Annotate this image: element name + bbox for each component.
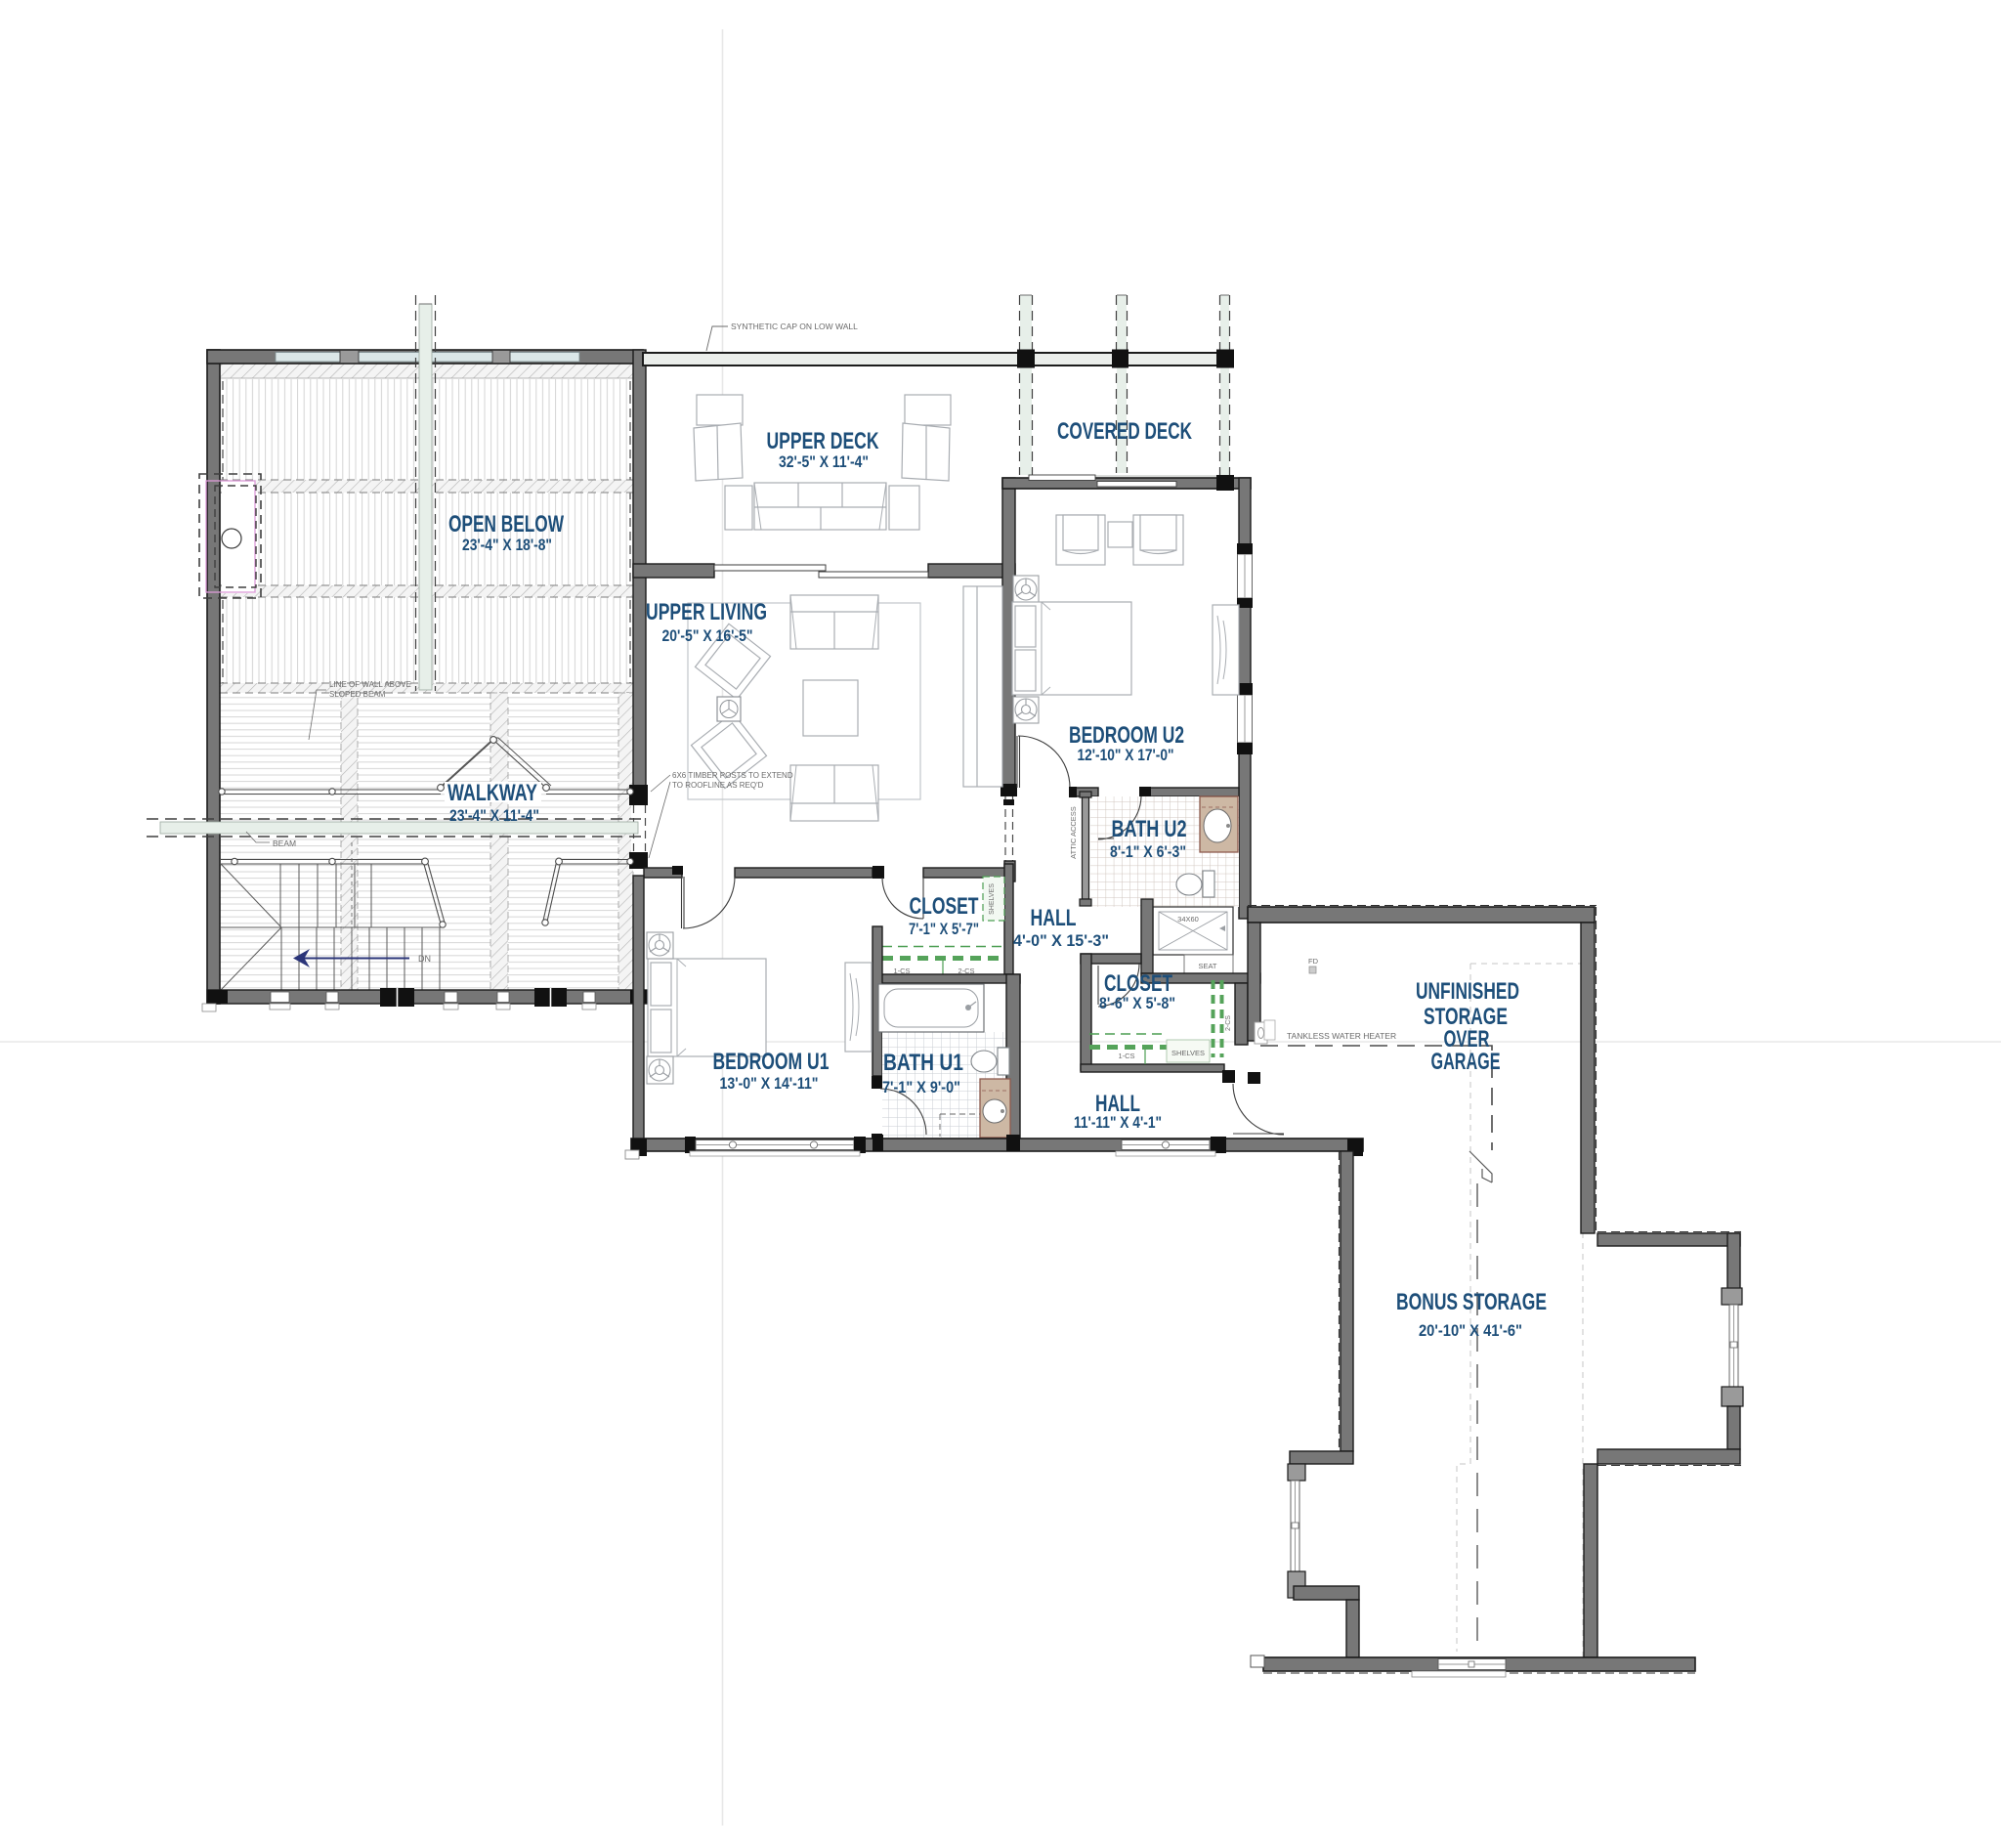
svg-text:BONUS STORAGE: BONUS STORAGE: [1396, 1289, 1547, 1315]
svg-text:SYNTHETIC CAP ON LOW WALL: SYNTHETIC CAP ON LOW WALL: [731, 322, 858, 331]
svg-text:13'-0" X 14'-11": 13'-0" X 14'-11": [720, 1074, 819, 1093]
svg-text:BEAM: BEAM: [273, 838, 296, 848]
svg-text:7'-1" X 5'-7": 7'-1" X 5'-7": [909, 920, 979, 938]
svg-text:SHELVES: SHELVES: [1171, 1049, 1205, 1057]
svg-text:20'-10" X 41'-6": 20'-10" X 41'-6": [1419, 1321, 1522, 1340]
svg-text:HALL: HALL: [1031, 905, 1077, 931]
svg-text:8'-1" X 6'-3": 8'-1" X 6'-3": [1110, 842, 1186, 861]
svg-text:12'-10" X 17'-0": 12'-10" X 17'-0": [1078, 746, 1174, 764]
svg-text:TO ROOFLINE AS REQ'D: TO ROOFLINE AS REQ'D: [672, 781, 764, 790]
svg-text:23'-4" X 18'-8": 23'-4" X 18'-8": [462, 536, 552, 554]
svg-text:4'-0" X 15'-3": 4'-0" X 15'-3": [1013, 931, 1109, 950]
svg-text:BEDROOM U1: BEDROOM U1: [713, 1049, 830, 1075]
svg-text:FD: FD: [1308, 957, 1319, 966]
svg-text:SLOPED BEAM: SLOPED BEAM: [329, 690, 386, 699]
svg-text:7'-1" X 9'-0": 7'-1" X 9'-0": [882, 1078, 960, 1096]
svg-text:2-CS: 2-CS: [1225, 1015, 1232, 1031]
svg-text:UNFINISHED: UNFINISHED: [1416, 978, 1519, 1005]
svg-text:SEAT: SEAT: [1198, 962, 1216, 970]
svg-text:WALKWAY: WALKWAY: [447, 780, 537, 806]
svg-text:6X6 TIMBER POSTS TO EXTEND: 6X6 TIMBER POSTS TO EXTEND: [672, 771, 793, 780]
svg-text:20'-5" X 16'-5": 20'-5" X 16'-5": [662, 626, 753, 645]
svg-text:COVERED DECK: COVERED DECK: [1057, 418, 1192, 445]
svg-text:OPEN BELOW: OPEN BELOW: [448, 511, 564, 537]
svg-text:TANKLESS WATER HEATER: TANKLESS WATER HEATER: [1287, 1031, 1396, 1041]
svg-text:CLOSET: CLOSET: [1104, 970, 1172, 997]
svg-text:34X60: 34X60: [1177, 915, 1199, 924]
svg-text:UPPER DECK: UPPER DECK: [767, 428, 879, 454]
svg-text:1-CS: 1-CS: [1118, 1052, 1134, 1060]
svg-text:UPPER LIVING: UPPER LIVING: [646, 599, 767, 625]
svg-text:32'-5" X 11'-4": 32'-5" X 11'-4": [779, 452, 869, 471]
svg-text:11'-11" X 4'-1": 11'-11" X 4'-1": [1074, 1113, 1162, 1132]
svg-text:DN: DN: [418, 954, 431, 964]
svg-text:BATH U1: BATH U1: [883, 1050, 963, 1076]
svg-text:BEDROOM U2: BEDROOM U2: [1069, 722, 1184, 749]
svg-text:SHELVES: SHELVES: [989, 883, 996, 915]
svg-text:8'-6" X 5'-8": 8'-6" X 5'-8": [1099, 994, 1175, 1012]
svg-text:CLOSET: CLOSET: [910, 893, 979, 920]
svg-text:BATH U2: BATH U2: [1112, 816, 1187, 842]
svg-text:ATTIC ACCESS: ATTIC ACCESS: [1069, 806, 1078, 859]
svg-text:GARAGE: GARAGE: [1431, 1049, 1501, 1075]
svg-text:LINE OF WALL ABOVE: LINE OF WALL ABOVE: [329, 680, 411, 689]
svg-text:23'-4" X 11'-4": 23'-4" X 11'-4": [449, 806, 539, 825]
